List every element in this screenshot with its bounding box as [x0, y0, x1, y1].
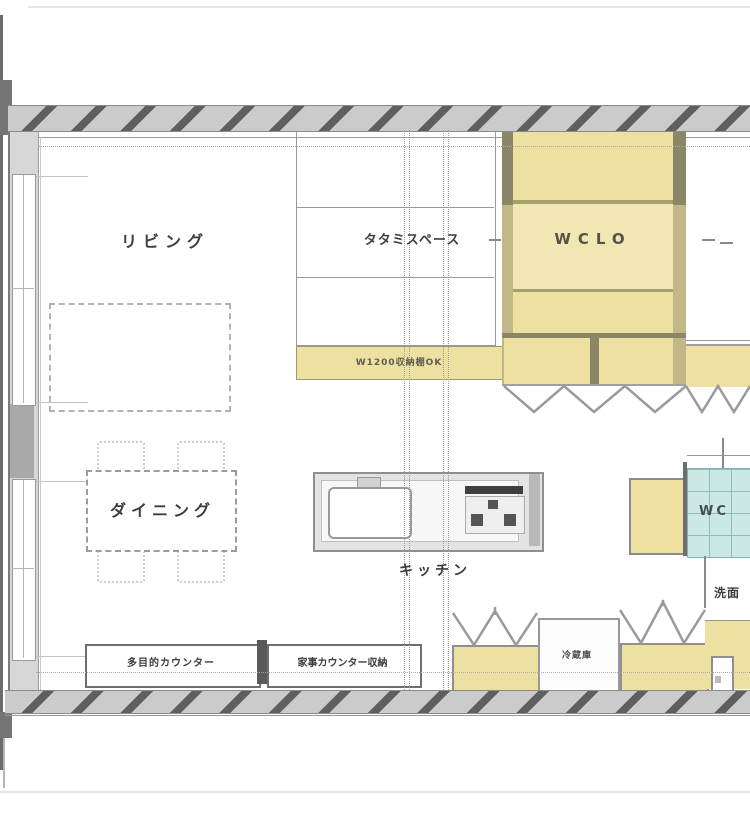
counter-separator-wall: [257, 640, 267, 684]
wc-cabinet: [629, 478, 687, 555]
window-left-bottom-glass-line: [23, 480, 24, 658]
window-left-bottom: [12, 479, 36, 661]
wall-bottom: [5, 690, 750, 714]
stove-burner: [471, 514, 483, 526]
right-closet-band: [686, 344, 750, 387]
wclo-right-pillar: [673, 130, 686, 205]
wc-entry-wall-line: [722, 438, 724, 468]
counter-work-label: 家事カウンター収納: [267, 653, 418, 669]
wc-counter-line: [687, 455, 750, 456]
bifold-door-wclo: [504, 386, 686, 412]
window-tick: [36, 481, 88, 482]
bottom-faint-line: [0, 791, 750, 793]
wclo-base-left: [504, 338, 590, 385]
module-grid-line: [409, 130, 410, 690]
wclo-lower-compartment: [513, 292, 673, 333]
inner-wall-face-line: [40, 137, 41, 690]
wclo-left-pillar: [502, 130, 513, 205]
top-dotted-line: [38, 146, 750, 147]
counter-multi-label: 多目的カウンター: [85, 653, 257, 669]
floor-plan: リビング タタミスペース W1200収納棚OK WCLO ダイニング: [0, 0, 750, 819]
kitchen-counter-end: [529, 474, 540, 546]
cabinet-right: [620, 643, 709, 693]
wall-bottom-outer-line: [5, 715, 750, 716]
living-room-label: リビング: [95, 228, 235, 252]
right-closet-top-line: [686, 340, 750, 341]
leader-dash: [489, 239, 501, 241]
bifold-door-cabinet-right: [620, 600, 705, 643]
wclo-base-right: [599, 338, 673, 385]
leader-dash: [720, 242, 733, 244]
tatami-joint-line: [296, 207, 494, 208]
dining-chair: [97, 549, 145, 583]
bifold-door-cabinet-left: [453, 607, 537, 645]
window-tick: [36, 656, 88, 657]
window-left-top-sash-line: [12, 288, 34, 289]
kitchen-sink: [328, 487, 412, 539]
window-left-top: [12, 174, 36, 406]
wclo-top-compartment: [513, 130, 673, 200]
wall-left-mid-segment: [10, 404, 34, 478]
cabinet-left: [452, 645, 540, 693]
washroom-door: [711, 656, 734, 692]
tatami-joint-line: [296, 277, 494, 278]
window-left-bottom-sash-line: [12, 568, 34, 569]
wc-label: WC: [692, 503, 736, 519]
module-grid-line: [404, 130, 405, 690]
kitchen-label: キッチン: [385, 561, 485, 579]
dining-label: ダイニング: [95, 498, 230, 520]
stove-backbar: [465, 486, 523, 494]
wclo-base-separator: [590, 338, 599, 385]
module-grid-line: [448, 130, 449, 690]
window-tick: [36, 176, 88, 177]
washroom-door-handle: [715, 676, 721, 683]
sofa: [49, 303, 231, 412]
module-grid-line: [443, 130, 444, 690]
refrigerator-label: 冷蔵庫: [545, 647, 609, 661]
stove-burner: [504, 514, 516, 526]
leader-dash: [702, 239, 715, 241]
dining-chair: [177, 549, 225, 583]
wall-top: [8, 105, 750, 132]
bottom-left-wall-tail: [3, 738, 5, 788]
wclo-label: WCLO: [513, 229, 673, 249]
window-left-top-glass-line: [23, 175, 24, 403]
bottom-dotted-line: [36, 672, 750, 673]
washroom-label: 洗面: [714, 584, 750, 600]
stove-burner: [488, 500, 498, 509]
tatami-space-label: タタミスペース: [336, 229, 488, 247]
storage-band-label: W1200収納棚OK: [300, 353, 498, 369]
bifold-door-right-closet: [686, 386, 750, 412]
wclo-right-pillar-lower: [673, 205, 686, 385]
top-faint-line: [28, 6, 750, 8]
